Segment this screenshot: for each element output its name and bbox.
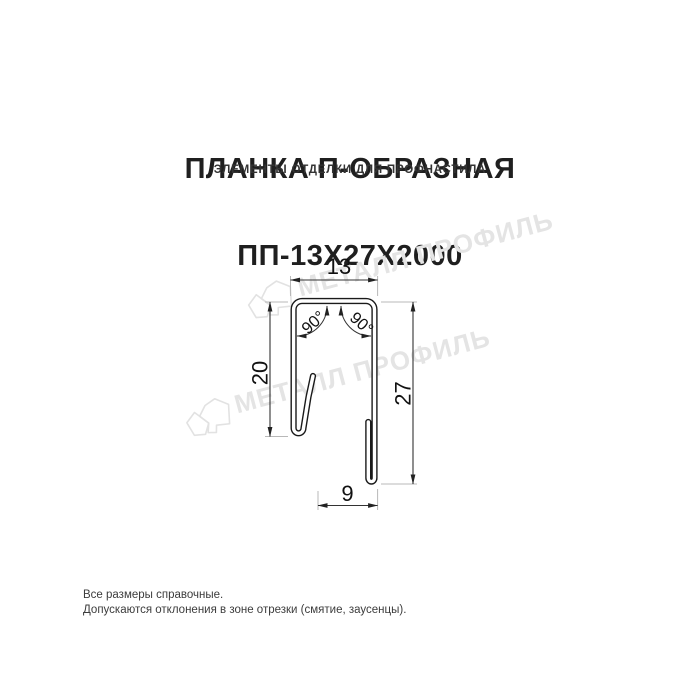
footer-note-line-1: Все размеры справочные. <box>83 588 406 603</box>
dimension-bottom-width: 9 <box>318 481 378 510</box>
dimension-label-9: 9 <box>341 481 353 506</box>
dimension-left-height: 20 <box>248 302 289 437</box>
angle-label-left: 90° <box>298 308 329 338</box>
footer-note-line-2: Допускаются отклонения в зоне отрезки (с… <box>83 603 406 618</box>
watermark-middle: МЕТАЛЛ ПРОФИЛЬ <box>182 322 496 439</box>
metall-profil-logo-icon <box>183 396 235 440</box>
dimension-label-27: 27 <box>391 381 416 405</box>
dimension-label-13: 13 <box>327 254 351 279</box>
dimension-label-20: 20 <box>248 361 273 385</box>
dimension-right-height: 27 <box>381 302 417 484</box>
footer-notes: Все размеры справочные. Допускаются откл… <box>83 588 406 618</box>
product-drawing-page: ПЛАНКА П-ОБРАЗНАЯ ПП-13Х27Х2000 ЭЛЕМЕНТЫ… <box>0 0 700 700</box>
watermark-top: МЕТАЛЛ ПРОФИЛЬ <box>244 205 558 322</box>
